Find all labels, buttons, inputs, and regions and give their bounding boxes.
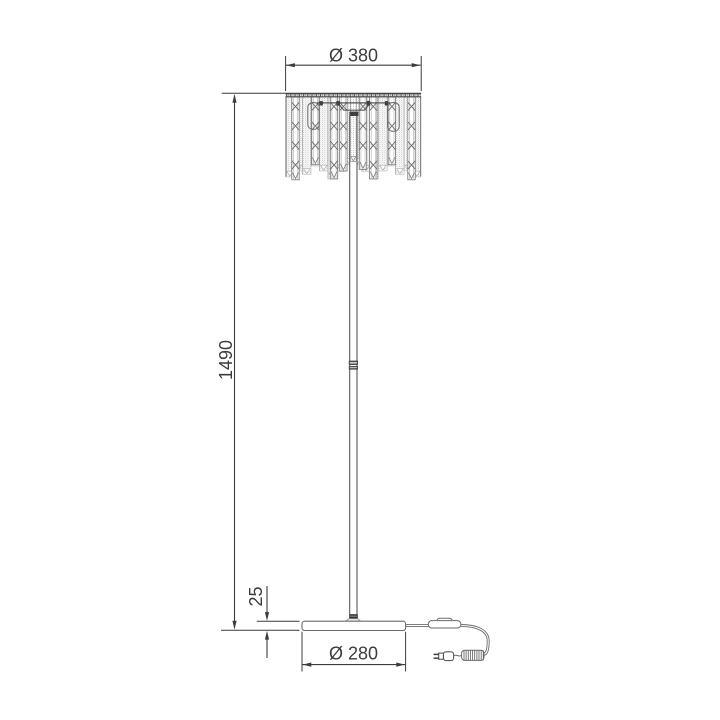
svg-text:25: 25: [246, 586, 266, 606]
svg-text:Ø 280: Ø 280: [329, 644, 378, 664]
svg-text:Ø 380: Ø 380: [329, 46, 378, 66]
svg-text:1490: 1490: [216, 340, 236, 380]
